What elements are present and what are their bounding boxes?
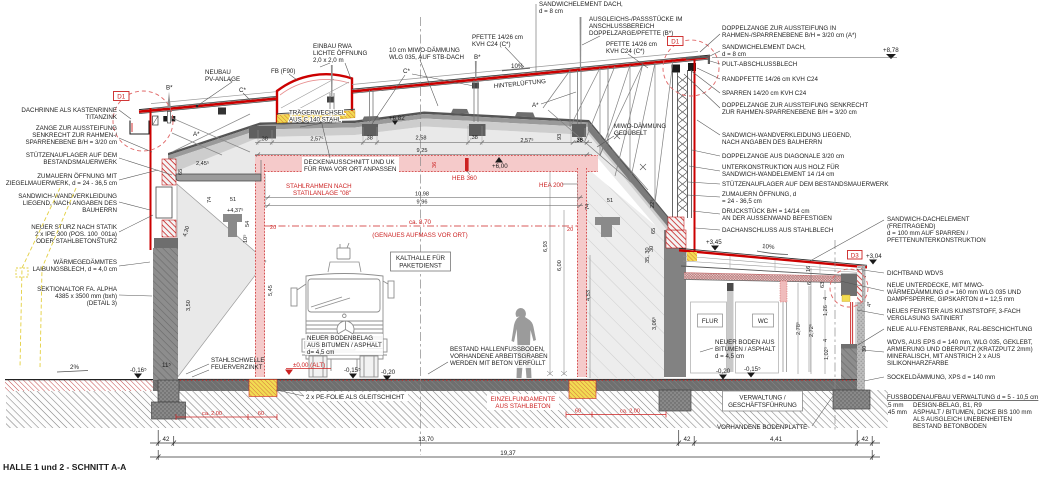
svg-text:LICHTE ÖFFNUNG: LICHTE ÖFFNUNG [313, 50, 368, 57]
svg-text:NEUER STURZ NACH STATIK: NEUER STURZ NACH STATIK [31, 224, 118, 231]
svg-text:VORHANDENE BODENPLATTE: VORHANDENE BODENPLATTE [717, 424, 807, 431]
svg-text:ZUR RAHMEN-SPARRENEBENE B/H =: ZUR RAHMEN-SPARRENEBENE B/H = 3/20 cm [722, 109, 857, 116]
svg-text:BESTAND HALLENFUSSBODEN,: BESTAND HALLENFUSSBODEN, [450, 346, 545, 353]
svg-text:DESIGN-BELAG, B1, R9: DESIGN-BELAG, B1, R9 [913, 402, 982, 409]
svg-text:B*: B* [166, 85, 173, 92]
svg-text:STÜTZENAUFLAGER AUF DEM: STÜTZENAUFLAGER AUF DEM [26, 152, 117, 159]
svg-text:B*: B* [474, 54, 481, 61]
svg-text:D1: D1 [117, 94, 125, 101]
svg-text:60: 60 [575, 409, 581, 415]
svg-text:EINBAU RWA: EINBAU RWA [313, 43, 353, 50]
svg-text:45 mm: 45 mm [888, 409, 907, 416]
svg-text:SPARRENEBENE B/H = 3/20 cm: SPARRENEBENE B/H = 3/20 cm [25, 139, 117, 146]
svg-text:,38: ,38 [365, 136, 373, 142]
svg-text:2,45⁵: 2,45⁵ [196, 160, 209, 167]
svg-text:NEUE ALU-FENSTERBANK, RAL-BESC: NEUE ALU-FENSTERBANK, RAL-BESCHICHTUNG [887, 326, 1033, 333]
svg-text:SOCKELDÄMMUNG, XPS d = 140 mm: SOCKELDÄMMUNG, XPS d = 140 mm [887, 374, 995, 381]
svg-text:NEUER BODEN AUS: NEUER BODEN AUS [715, 339, 774, 346]
svg-text:ARMIERUNG UND OBERPUTZ (KRATZP: ARMIERUNG UND OBERPUTZ (KRATZPUTZ 2mm) [887, 346, 1033, 353]
svg-text:SANDWICHELEMENT DACH,: SANDWICHELEMENT DACH, [722, 44, 806, 51]
svg-text:MIWO-DÄMMUNG: MIWO-DÄMMUNG [614, 123, 666, 130]
svg-text:SEKTIONALTOR FA. ALPHA: SEKTIONALTOR FA. ALPHA [37, 286, 118, 293]
svg-text:35, 30: 35, 30 [645, 247, 651, 263]
svg-text:2 x IPE 300 (POS. 100_001a): 2 x IPE 300 (POS. 100_001a) [35, 231, 117, 238]
svg-text:BESTANDSMAUERWERK: BESTANDSMAUERWERK [43, 159, 118, 166]
svg-text:ZUMAUERN ÖFFNUNG MIT: ZUMAUERN ÖFFNUNG MIT [37, 173, 117, 180]
svg-text:TITANZINK: TITANZINK [85, 114, 117, 121]
svg-text:(GENAUES AUFMASS VOR ORT): (GENAUES AUFMASS VOR ORT) [372, 232, 467, 239]
svg-text:AN DER AUSSENWAND BEFESTIGEN: AN DER AUSSENWAND BEFESTIGEN [722, 215, 832, 222]
svg-text:42: 42 [163, 436, 170, 443]
svg-text:STATILANLAGE "08": STATILANLAGE "08" [293, 190, 351, 197]
svg-text:FUSSBODENAUFBAU VERWALTUNG d =: FUSSBODENAUFBAU VERWALTUNG d = 5 - 10,5 … [887, 394, 1038, 401]
svg-text:2%: 2% [70, 364, 79, 371]
svg-text:DOPPELZARGE/PFETTE (B*): DOPPELZARGE/PFETTE (B*) [589, 30, 673, 37]
svg-text:WDVS, AUS EPS d = 140 mm, WLG: WDVS, AUS EPS d = 140 mm, WLG 035, GEKLE… [887, 339, 1033, 346]
svg-text:ca. 2,00: ca. 2,00 [202, 411, 222, 417]
svg-text:-0,15⁵: -0,15⁵ [744, 366, 761, 373]
svg-text:RAHMEN-/SPARRENEBENE B/H = 3/2: RAHMEN-/SPARRENEBENE B/H = 3/20 cm (A*) [722, 32, 857, 39]
svg-text:WLG 035, AUF STB-DACH: WLG 035, AUF STB-DACH [389, 54, 464, 61]
svg-text:C*: C* [239, 87, 246, 94]
svg-text:ZANGE ZUR AUSSTEIFUNG: ZANGE ZUR AUSSTEIFUNG [36, 125, 117, 132]
svg-text:93: 93 [557, 134, 563, 140]
svg-text:+4,37⁵: +4,37⁵ [227, 207, 243, 214]
svg-text:AUSGLEICHS-/PASSSTÜCKE IM: AUSGLEICHS-/PASSSTÜCKE IM [589, 16, 682, 23]
svg-text:SANDWICHELEMENT DACH,: SANDWICHELEMENT DACH, [539, 1, 623, 8]
svg-text:EINZELFUNDAMENTE: EINZELFUNDAMENTE [491, 396, 556, 403]
svg-text:TRÄGERWECHSEL: TRÄGERWECHSEL [289, 110, 346, 117]
svg-text:+3,04: +3,04 [866, 253, 882, 260]
svg-text:-0,15⁵: -0,15⁵ [344, 367, 361, 374]
svg-text:UNTERKONSTRUKTION AUS HOLZ FÜR: UNTERKONSTRUKTION AUS HOLZ FÜR [722, 164, 840, 171]
svg-text:10 cm MIWO-DÄMMUNG: 10 cm MIWO-DÄMMUNG [389, 47, 460, 54]
svg-text:22⁵: 22⁵ [649, 199, 656, 208]
svg-text:2,78⁵: 2,78⁵ [795, 322, 802, 335]
svg-text:ca. 8,70: ca. 8,70 [409, 219, 432, 226]
svg-text:,38: ,38 [575, 138, 583, 144]
svg-text:DACHANSCHLUSS AUS STAHLBLECH: DACHANSCHLUSS AUS STAHLBLECH [722, 227, 833, 234]
svg-text:6,93: 6,93 [543, 241, 549, 252]
svg-text:4: 4 [823, 339, 829, 342]
svg-text:+8,78: +8,78 [883, 47, 899, 54]
svg-text:DOPPELZANGE AUS DIAGONALE 3/20: DOPPELZANGE AUS DIAGONALE 3/20 cm [722, 153, 844, 160]
svg-text:SANDWICH-DACHELEMENT: SANDWICH-DACHELEMENT [887, 216, 970, 223]
svg-text:36: 36 [432, 162, 438, 168]
svg-text:42: 42 [684, 436, 691, 443]
svg-text:2,0 x 2,0 m: 2,0 x 2,0 m [313, 57, 344, 64]
svg-text:10%: 10% [762, 243, 775, 251]
svg-text:SILIKONHARZFARBE: SILIKONHARZFARBE [887, 360, 949, 367]
svg-text:19,37: 19,37 [500, 450, 516, 457]
svg-text:WÄRMEDÄMMUNG d = 160 mm WLG 03: WÄRMEDÄMMUNG d = 160 mm WLG 035 UND [887, 289, 1021, 296]
svg-text:DOPPELZANGE ZUR AUSSTEIFUNG SE: DOPPELZANGE ZUR AUSSTEIFUNG SENKRECHT [722, 102, 868, 109]
svg-text:FÜR RWA VOR ORT ANPASSEN: FÜR RWA VOR ORT ANPASSEN [304, 166, 397, 173]
svg-text:D3: D3 [851, 253, 859, 260]
svg-text:9,96: 9,96 [417, 200, 428, 206]
svg-text:STÜTZENAUFLAGER AUF DEM BESTAN: STÜTZENAUFLAGER AUF DEM BESTANDSMAUERWER… [722, 181, 889, 188]
svg-text:PV-ANLAGE: PV-ANLAGE [205, 76, 240, 83]
svg-text:+6,00: +6,00 [492, 163, 508, 170]
svg-text:FEUERVERZINKT: FEUERVERZINKT [211, 364, 263, 371]
svg-text:-0,16⁵: -0,16⁵ [130, 367, 147, 374]
svg-text:54: 54 [245, 221, 251, 227]
svg-text:PFETTE 14/26 cm: PFETTE 14/26 cm [606, 41, 657, 48]
svg-text:20: 20 [567, 227, 573, 233]
svg-text:9,25: 9,25 [417, 148, 428, 154]
svg-text:WC: WC [758, 318, 769, 325]
svg-text:VERGLASUNG SATINIERT: VERGLASUNG SATINIERT [887, 315, 964, 322]
svg-text:RANDPFETTE 14/26 cm KVH C24: RANDPFETTE 14/26 cm KVH C24 [722, 76, 818, 83]
svg-text:PAKETDIENST: PAKETDIENST [399, 263, 442, 270]
svg-text:PULT-ABSCHLUSSBLECH: PULT-ABSCHLUSSBLECH [722, 61, 797, 68]
svg-text:GEDÜBELT: GEDÜBELT [614, 130, 647, 137]
svg-text:C*: C* [403, 68, 410, 75]
svg-text:DAMPFSPERRE, GIPSKARTON d = 12: DAMPFSPERRE, GIPSKARTON d = 12,5 mm [887, 296, 1014, 303]
svg-text:5 mm: 5 mm [888, 402, 903, 409]
svg-text:KVH C24 (C*): KVH C24 (C*) [606, 48, 645, 55]
svg-text:HALLE 1 und 2 - SCHNITT A-A: HALLE 1 und 2 - SCHNITT A-A [3, 462, 126, 472]
svg-text:GESCHÄFTSFÜHRUNG: GESCHÄFTSFÜHRUNG [728, 402, 797, 409]
svg-text:HEB 360: HEB 360 [452, 175, 477, 182]
svg-text:D1: D1 [671, 39, 679, 46]
svg-text:= 24 - 36,5 cm: = 24 - 36,5 cm [722, 198, 762, 205]
svg-text:AUS STAHLBETON: AUS STAHLBETON [495, 403, 550, 410]
svg-text:BAUHERRN: BAUHERRN [82, 207, 117, 214]
svg-text:DECKENAUSSCHNITT UND UK: DECKENAUSSCHNITT UND UK [304, 159, 396, 166]
svg-text:3,06⁶: 3,06⁶ [651, 317, 658, 330]
svg-text:63: 63 [820, 282, 826, 288]
svg-text:d = 4,5 cm: d = 4,5 cm [715, 353, 744, 360]
svg-text:NEUES FENSTER AUS KUNSTSTOFF,: NEUES FENSTER AUS KUNSTSTOFF, 3-FACH [887, 308, 1021, 315]
svg-text:11⁵: 11⁵ [162, 362, 171, 369]
svg-text:SANDWICH-WANDVERKLEIDUNG LIEGE: SANDWICH-WANDVERKLEIDUNG LIEGEND, [722, 132, 852, 139]
svg-text:ALS AUSGLEICH UNEBENHEITEN: ALS AUSGLEICH UNEBENHEITEN [913, 416, 1012, 423]
svg-text:(FREITRAGEND): (FREITRAGEND) [887, 223, 935, 230]
svg-text:d= 4,5 cm: d= 4,5 cm [307, 349, 334, 356]
svg-text:AUS C 140 STAHL: AUS C 140 STAHL [289, 117, 342, 124]
svg-text:FLUR: FLUR [702, 318, 719, 325]
svg-text:DOPPELZANGE ZUR AUSSTEIFUNG IN: DOPPELZANGE ZUR AUSSTEIFUNG IN [722, 25, 836, 32]
svg-text:STAHLSCHWELLE: STAHLSCHWELLE [211, 357, 265, 364]
svg-text:SPARREN 14/20 cm KVH C24: SPARREN 14/20 cm KVH C24 [722, 90, 807, 97]
svg-text:51: 51 [607, 198, 613, 204]
svg-text:30: 30 [862, 346, 868, 352]
svg-text:SANDWICH-WANDVERKLEIDUNG: SANDWICH-WANDVERKLEIDUNG [18, 193, 117, 200]
svg-text:51: 51 [230, 197, 236, 203]
svg-text:ASPHALT / BITUMEN, DICKE BIS 1: ASPHALT / BITUMEN, DICKE BIS 100 mm [913, 409, 1032, 416]
svg-text:2,57⁵: 2,57⁵ [310, 136, 323, 143]
svg-text:-0,20: -0,20 [716, 368, 731, 375]
svg-text:10,98: 10,98 [415, 192, 429, 198]
svg-text:DICHTBAND WDVS: DICHTBAND WDVS [887, 270, 943, 277]
svg-text:SENKRECHT ZUR RAHMEN-/: SENKRECHT ZUR RAHMEN-/ [32, 132, 117, 139]
svg-text:STAHLRAHMEN NACH: STAHLRAHMEN NACH [286, 183, 352, 190]
svg-text:6,00: 6,00 [557, 260, 563, 271]
svg-text:WÄRMEGEDÄMMTES: WÄRMEGEDÄMMTES [53, 259, 117, 266]
svg-text:2 x PE-FOLIE ALS GLEITSCHICHT: 2 x PE-FOLIE ALS GLEITSCHICHT [306, 394, 405, 401]
svg-text:MINERALISCH, MIT ANSTRICH 2 x: MINERALISCH, MIT ANSTRICH 2 x AUS [887, 353, 1000, 360]
svg-text:74: 74 [585, 204, 591, 210]
svg-text:74: 74 [207, 197, 213, 203]
svg-text:4385 x 3500 mm (bxh): 4385 x 3500 mm (bxh) [55, 293, 117, 300]
svg-text:d = 8 cm: d = 8 cm [722, 51, 746, 58]
svg-text:±0,00 (ALT): ±0,00 (ALT) [293, 362, 325, 369]
svg-text:,38: ,38 [470, 135, 478, 141]
svg-text:PFETTENUNTERKONSTRUKTION: PFETTENUNTERKONSTRUKTION [887, 237, 986, 244]
svg-text:1,02⁵: 1,02⁵ [823, 347, 830, 360]
svg-text:HEA 200: HEA 200 [539, 182, 564, 189]
svg-text:10⁵: 10⁵ [242, 234, 249, 243]
svg-text:5,45: 5,45 [268, 285, 274, 296]
svg-text:4,41: 4,41 [770, 436, 783, 443]
svg-text:A*: A* [193, 131, 200, 138]
svg-text:BESTAND BETONBODEN: BESTAND BETONBODEN [913, 423, 987, 430]
svg-text:4,53: 4,53 [586, 290, 592, 301]
svg-text:ZUMAUERN ÖFFNUNG, d: ZUMAUERN ÖFFNUNG, d [722, 191, 797, 198]
svg-text:KALTHALLE FÜR: KALTHALLE FÜR [396, 255, 446, 262]
svg-text:WERDEN MIT BETON VERFÜLLT: WERDEN MIT BETON VERFÜLLT [450, 360, 546, 367]
svg-text:PFETTE 14/26 cm: PFETTE 14/26 cm [472, 34, 523, 41]
svg-text:VORHANDENE ARBEITSGRABEN: VORHANDENE ARBEITSGRABEN [450, 353, 548, 360]
svg-text:-0,20: -0,20 [381, 369, 396, 376]
svg-text:AUS BITUMEN / ASPHALT: AUS BITUMEN / ASPHALT [307, 342, 382, 349]
svg-text:d = 100 mm AUF SPARREN /: d = 100 mm AUF SPARREN / [887, 230, 968, 237]
svg-text:2,57⁵: 2,57⁵ [520, 137, 533, 144]
svg-text:KVH C24 (C*): KVH C24 (C*) [472, 41, 511, 48]
svg-text:NACH ANGABEN DES BAUHERRN: NACH ANGABEN DES BAUHERRN [722, 139, 822, 146]
svg-text:1,26: 1,26 [823, 305, 829, 316]
svg-text:DRUCKSTÜCK B/H = 14/14 cm: DRUCKSTÜCK B/H = 14/14 cm [722, 208, 810, 215]
svg-text:60: 60 [258, 411, 264, 417]
svg-text:ODER STAHLBETONSTURZ: ODER STAHLBETONSTURZ [36, 238, 117, 245]
svg-text:20: 20 [270, 225, 276, 231]
svg-text:+3,45: +3,45 [706, 239, 722, 246]
svg-text:DACHRINNE ALS KASTENRINNE: DACHRINNE ALS KASTENRINNE [21, 107, 117, 114]
svg-text:A*: A* [532, 102, 539, 109]
svg-text:13,70: 13,70 [418, 436, 434, 443]
svg-text:2,72⁶: 2,72⁶ [808, 324, 815, 337]
svg-text:NEUBAU: NEUBAU [205, 69, 231, 76]
svg-text:4: 4 [823, 297, 829, 300]
svg-text:4*: 4* [867, 301, 873, 307]
svg-text:65: 65 [178, 169, 184, 175]
svg-text:,38: ,38 [260, 137, 268, 143]
svg-text:65: 65 [651, 228, 657, 234]
svg-text:LAIBUNGSBLECH, d = 4,0 cm: LAIBUNGSBLECH, d = 4,0 cm [33, 266, 117, 273]
svg-text:NEUE UNTERDECKE, MIT MIWO-: NEUE UNTERDECKE, MIT MIWO- [887, 282, 984, 289]
svg-text:(DETAIL 3): (DETAIL 3) [87, 300, 117, 307]
svg-text:2,58: 2,58 [416, 136, 427, 142]
svg-text:VERWALTUNG /: VERWALTUNG / [739, 395, 786, 402]
svg-text:3,50: 3,50 [186, 300, 192, 311]
svg-text:NEUER BODENBELAG: NEUER BODENBELAG [307, 335, 373, 342]
svg-text:d = 8 cm: d = 8 cm [539, 8, 563, 15]
svg-text:BITUMEN / ASPHALT: BITUMEN / ASPHALT [715, 346, 776, 353]
svg-text:SANDWICH-WANDELEMENT 14 /14 cm: SANDWICH-WANDELEMENT 14 /14 cm [722, 171, 834, 178]
svg-text:ANSCHLUSSBEREICH: ANSCHLUSSBEREICH [589, 23, 654, 30]
svg-text:ca. 2,00: ca. 2,00 [620, 409, 640, 415]
svg-text:FB (F90): FB (F90) [271, 68, 295, 75]
svg-text:ZIEGELMAUERWERK, d = 24 - 36,5: ZIEGELMAUERWERK, d = 24 - 36,5 cm [6, 180, 117, 187]
svg-text:42: 42 [862, 436, 869, 443]
svg-text:6: 6 [807, 282, 813, 285]
